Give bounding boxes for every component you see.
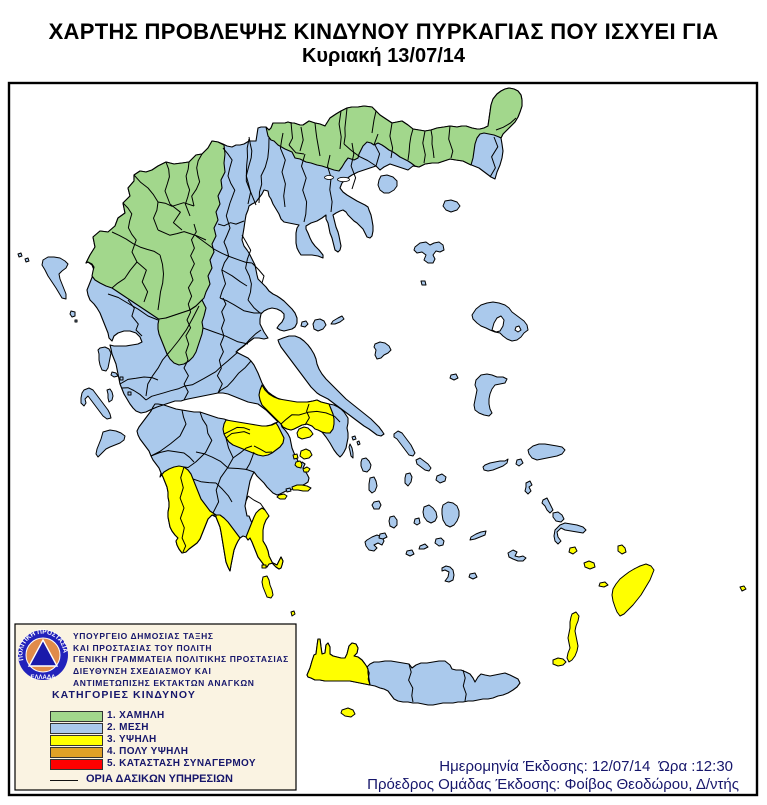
svg-text:ΕΛΛΑΔΑ: ΕΛΛΑΔΑ — [31, 675, 57, 681]
